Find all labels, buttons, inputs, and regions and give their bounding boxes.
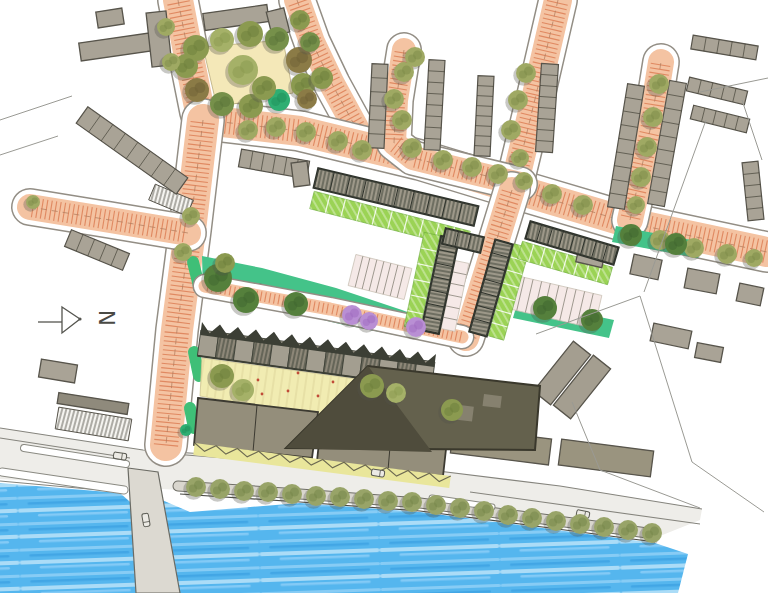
tree-texture [653,238,661,246]
tree-texture [477,509,485,517]
tree-texture [293,18,301,26]
building-block [96,8,124,28]
masterplan-drawing: N [0,0,768,593]
tree-texture [309,494,317,502]
tree-texture [405,146,413,154]
tree-texture [28,200,34,206]
tree-texture [214,373,224,383]
tree-texture [182,429,187,434]
tree-texture [630,203,637,210]
tree-texture [303,40,311,48]
car-symbol [371,469,385,477]
tree-texture [501,513,509,521]
tree-texture [465,165,473,173]
tree-texture [290,57,300,67]
tree-texture [355,148,363,156]
tree-texture [687,246,695,254]
tree-texture [214,37,224,47]
tree-texture [243,103,253,113]
car-body [371,469,385,477]
tree-texture [549,519,557,527]
tree-texture [645,531,653,539]
tree-texture [381,499,389,507]
car-symbol [113,452,127,460]
tree-texture [288,301,298,311]
tree-texture [518,179,525,186]
courtyard-dot [332,381,335,384]
tree-texture [453,506,461,514]
tree-texture [187,45,197,55]
tree-texture [408,55,416,63]
courtyard-dot [257,379,260,382]
tree-texture [285,492,293,500]
tree-texture [256,85,266,95]
street-verge [190,408,194,428]
tree-texture [165,60,172,67]
tree-texture [668,241,677,250]
tree-texture [241,128,249,136]
north-label: N [94,310,118,326]
tree-texture [748,256,755,263]
north-arrow-dot [78,317,81,320]
tree-texture [395,118,403,126]
tree-texture [261,490,269,498]
tree-texture [208,275,219,286]
tree-texture [314,75,323,84]
tree-texture [271,97,280,106]
tree-texture [241,31,251,41]
tree-texture [634,175,642,183]
tree-texture [545,192,553,200]
tree-texture [235,387,244,396]
tree-texture [177,250,184,257]
tree-texture [185,214,192,221]
tree-texture [519,71,527,79]
tree-texture [363,319,370,326]
tree-texture [269,125,277,133]
page: N [0,0,768,593]
tree-texture [299,130,307,138]
tree-texture [218,261,226,269]
courtyard-dot [261,393,264,396]
tree-texture [237,489,245,497]
tree-texture [573,522,581,530]
tree-texture [720,252,728,260]
tree-texture [269,36,279,46]
tree-texture [405,500,413,508]
tree-texture [584,317,593,326]
tree-texture [429,503,437,511]
tree-texture [646,115,654,123]
tree-texture [364,383,374,393]
tree-texture [491,172,499,180]
tree-texture [387,97,395,105]
tree-texture [233,66,245,78]
tree-texture [213,487,221,495]
tree-texture [511,98,519,106]
tree-texture [640,145,648,153]
car-body [113,452,127,460]
tree-texture [397,70,405,78]
tree-texture [623,232,632,241]
tree-texture [504,128,512,136]
tree-texture [389,391,397,399]
terrace-row [474,76,494,157]
tree-texture [597,525,605,533]
courtyard-dot [287,390,290,393]
tree-texture [189,485,197,493]
tree-texture [345,313,353,321]
tree-texture [189,87,199,97]
tree-texture [300,97,308,105]
tree-texture [357,497,365,505]
tree-texture [525,516,533,524]
tree-texture [333,495,341,503]
tree-texture [214,101,224,111]
tree-texture [537,305,547,315]
building-block [291,161,310,187]
tree-texture [160,25,167,32]
tree-texture [237,297,247,307]
tree-texture [652,82,660,90]
roof-vent [483,394,502,408]
tree-texture [514,156,521,163]
tree-texture [621,528,629,536]
tree-texture [409,325,417,333]
tree-texture [436,158,444,166]
courtyard-dot [317,395,320,398]
tree-texture [444,407,453,416]
tree-texture [331,139,339,147]
courtyard-dot [297,372,300,375]
tree-texture [576,203,584,211]
